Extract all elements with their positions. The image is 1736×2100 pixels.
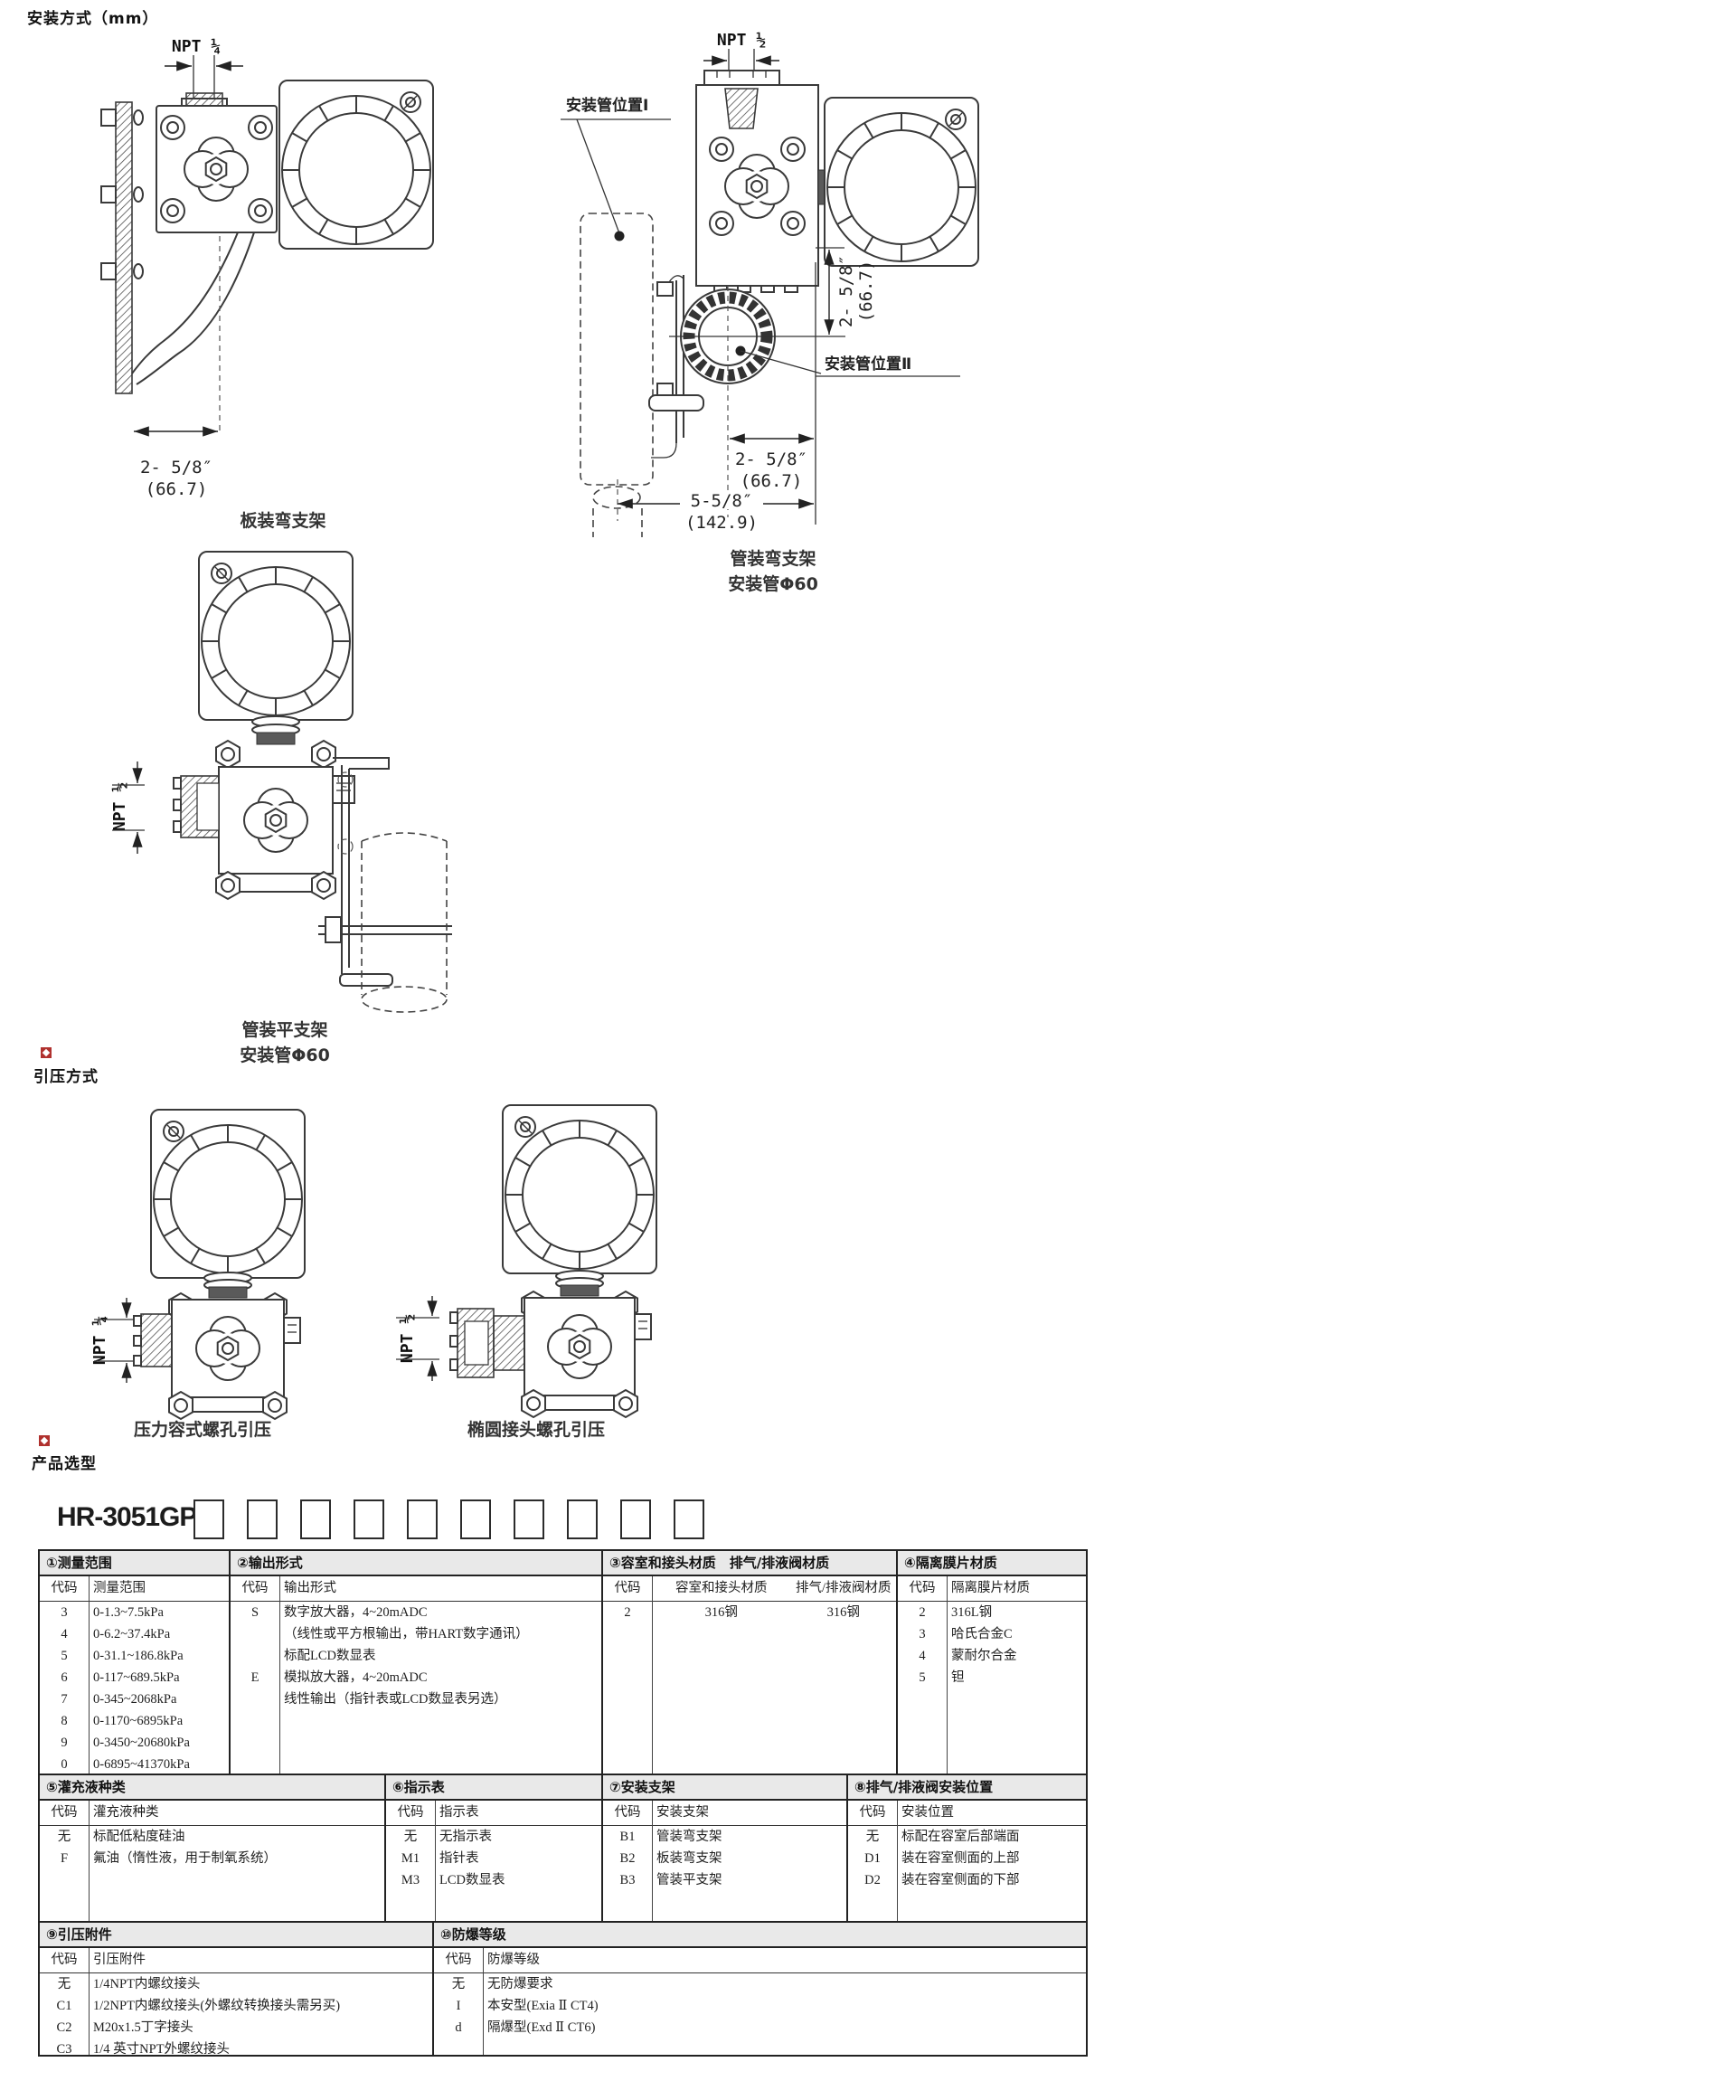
column-separator (89, 1801, 90, 1921)
column-separator (435, 1801, 436, 1921)
col-header: 防爆等级 (483, 1948, 1086, 1972)
vent-valve (635, 1314, 651, 1339)
transmitter-housing (279, 80, 433, 249)
diagram-caption: 管装弯支架 (730, 548, 816, 569)
spec-table-4: ④隔离膜片材质代码隔离膜片材质2316L钢3哈氏合金C4蒙耐尔合金5钽 (896, 1549, 1088, 1775)
table-row: B1管装弯支架 (603, 1826, 846, 1848)
table-header-row: 代码容室和接头材质排气/排液阀材质 (603, 1576, 896, 1602)
table-row: d隔爆型(Exd Ⅱ CT6) (434, 2017, 1086, 2039)
col-header: 安装位置 (897, 1801, 1086, 1825)
datasheet-page: 安装方式（mm） 引压方式 产品选型 NPT ¼ 2- 5/8″ (0, 0, 1736, 2100)
col-header: 引压附件 (89, 1948, 432, 1972)
cell: 0-345~2068kPa (89, 1689, 229, 1710)
table-header-row: 代码引压附件 (40, 1948, 432, 1973)
table-title: ④隔离膜片材质 (898, 1551, 1086, 1576)
diagram-tap-oval: NPT ½ 椭圆接头螺孔引压 (389, 1099, 696, 1452)
cell: 钽 (947, 1667, 1086, 1689)
dim-mm: (66.7) (146, 479, 208, 499)
cell: E (231, 1667, 279, 1689)
transmitter-housing (825, 98, 978, 266)
cell: 0-6895~41370kPa (89, 1754, 229, 1775)
table-row: B3管装平支架 (603, 1869, 846, 1891)
hdim1-inch: 2- 5/8″ (735, 449, 807, 469)
column-separator (897, 1801, 898, 1921)
column-separator (652, 1801, 653, 1921)
cell (231, 1689, 279, 1710)
table-row: S数字放大器，4~20mADC (231, 1602, 601, 1623)
pipe-pos2-label: 安装管位置Ⅱ (825, 355, 911, 374)
table-row: 无标配低粘度硅油 (40, 1826, 384, 1848)
column-separator (279, 1576, 280, 1774)
cell (231, 1645, 279, 1667)
code-box-3 (300, 1499, 331, 1539)
table-title: ⑥指示表 (386, 1775, 601, 1801)
col-header: 灌充液种类 (89, 1801, 384, 1825)
cell: 0-3450~20680kPa (89, 1732, 229, 1754)
table-row: 40-6.2~37.4kPa (40, 1623, 229, 1645)
table-row: 标配LCD数显表 (231, 1645, 601, 1667)
diagram-caption: 压力容式螺孔引压 (134, 1419, 271, 1440)
u-bolt (318, 917, 452, 942)
table-row: 无1/4NPT内螺纹接头 (40, 1973, 432, 1995)
cell: C2 (40, 2017, 89, 2039)
table-row: 2316L钢 (898, 1602, 1086, 1623)
vent-valve (284, 1318, 300, 1343)
cell: 氟油（惰性液，用于制氧系统） (89, 1848, 384, 1869)
cell: LCD数显表 (435, 1869, 601, 1891)
dim-inch: 2- 5/8″ (140, 458, 212, 478)
cell: M20x1.5丁字接头 (89, 2017, 432, 2039)
bent-bracket (132, 232, 238, 374)
cell: 无 (434, 1973, 483, 1995)
cell: 无 (40, 1973, 89, 1995)
diagram-caption: 椭圆接头螺孔引压 (467, 1419, 605, 1440)
npt-label: NPT ¼ (90, 1316, 109, 1365)
col-header: 代码 (386, 1801, 435, 1825)
table-row: 5钽 (898, 1667, 1086, 1689)
cell: 1/4NPT内螺纹接头 (89, 1973, 432, 1995)
table-title: ⑧排气/排液阀安装位置 (848, 1775, 1086, 1801)
spec-table-6: ⑥指示表代码指示表无无指示表M1指针表M3LCD数显表 (384, 1774, 603, 1923)
table-row: 90-3450~20680kPa (40, 1732, 229, 1754)
code-box-7 (514, 1499, 544, 1539)
cell: 数字放大器，4~20mADC (279, 1602, 601, 1623)
col-header: 代码 (40, 1576, 89, 1601)
section-title-pressure-tap: 引压方式 (33, 1064, 99, 1086)
diagram-pipe-bent-bracket: NPT ½ 安装管位置Ⅰ (533, 18, 1094, 606)
table-row: 60-117~689.5kPa (40, 1667, 229, 1689)
cell: B2 (603, 1848, 652, 1869)
code-box-5 (407, 1499, 438, 1539)
table-row: M1指针表 (386, 1848, 601, 1869)
col-header: 代码 (231, 1576, 279, 1601)
cell: 4 (40, 1623, 89, 1645)
cell: 0-31.1~186.8kPa (89, 1645, 229, 1667)
diagram-panel-bracket: NPT ¼ 2- 5/8″ (66.7) 板装弯支架 (77, 23, 457, 543)
cell: 无 (848, 1826, 897, 1848)
cell: B3 (603, 1869, 652, 1891)
code-box-9 (620, 1499, 651, 1539)
table-title: ①测量范围 (40, 1551, 229, 1576)
col-header: 隔离膜片材质 (947, 1576, 1086, 1601)
column-separator (89, 1576, 90, 1774)
cell: 隔爆型(Exd Ⅱ CT6) (483, 2017, 1086, 2039)
cell: 4 (898, 1645, 947, 1667)
table-row: 2316钢316钢 (603, 1602, 896, 1623)
cell: 2 (898, 1602, 947, 1623)
cell: 3 (40, 1602, 89, 1623)
table-row: 3哈氏合金C (898, 1623, 1086, 1645)
table-header-row: 代码隔离膜片材质 (898, 1576, 1086, 1602)
column-separator (483, 1948, 484, 2055)
cell: 2 (603, 1602, 652, 1623)
pipe-position-1 (580, 213, 653, 485)
table-header-row: 代码指示表 (386, 1801, 601, 1826)
col-header: 指示表 (435, 1801, 601, 1825)
cell: 1/2NPT内螺纹接头(外螺纹转换接头需另买) (89, 1995, 432, 2017)
cell: C3 (40, 2039, 89, 2060)
section-marker-icon (41, 1047, 52, 1058)
table-row: C2M20x1.5丁字接头 (40, 2017, 432, 2039)
transmitter-housing (503, 1105, 656, 1273)
table-row: 无无指示表 (386, 1826, 601, 1848)
diagram-pipe-flat-bracket: NPT ½ 管装平支架 安装管Φ60 (90, 543, 597, 1067)
npt-label: NPT ½ (717, 31, 766, 50)
cell: S (231, 1602, 279, 1623)
diagram-caption: 管装平支架 (241, 1019, 327, 1040)
cell: 3 (898, 1623, 947, 1645)
table-row: M3LCD数显表 (386, 1869, 601, 1891)
table-row: 50-31.1~186.8kPa (40, 1645, 229, 1667)
col-header: 代码 (434, 1948, 483, 1972)
table-header-row: 代码安装支架 (603, 1801, 846, 1826)
cell: 无防爆要求 (483, 1973, 1086, 1995)
cell: M1 (386, 1848, 435, 1869)
cell: 哈氏合金C (947, 1623, 1086, 1645)
vdim-inch: 2- 5/8″ (836, 255, 856, 327)
col-header: 代码 (848, 1801, 897, 1825)
cell: 指针表 (435, 1848, 601, 1869)
oval-adapter-port (450, 1309, 524, 1377)
spec-table-1: ①测量范围代码测量范围30-1.3~7.5kPa40-6.2~37.4kPa50… (38, 1549, 231, 1775)
col-header: 安装支架 (652, 1801, 846, 1825)
column-separator (652, 1576, 653, 1774)
cell: 0 (40, 1754, 89, 1775)
code-box-2 (247, 1499, 278, 1539)
table-row: C11/2NPT内螺纹接头(外螺纹转换接头需另买) (40, 1995, 432, 2017)
spec-table-8: ⑧排气/排液阀安装位置代码安装位置无标配在容室后部端面D1装在容室侧面的上部D2… (846, 1774, 1088, 1923)
vdim-mm: (66.7) (856, 260, 876, 323)
cell: 316钢 (791, 1602, 896, 1623)
code-box-8 (567, 1499, 598, 1539)
spec-table-10: ⑩防爆等级代码防爆等级无无防爆要求I本安型(Exia Ⅱ CT4)d隔爆型(Ex… (432, 1921, 1088, 2057)
npt-label: NPT ½ (398, 1314, 417, 1363)
diagram-caption: 安装管Φ60 (240, 1045, 330, 1065)
cell: 标配LCD数显表 (279, 1645, 601, 1667)
mounting-wall (116, 102, 132, 393)
cell: 0-117~689.5kPa (89, 1667, 229, 1689)
cell: 7 (40, 1689, 89, 1710)
cell: 本安型(Exia Ⅱ CT4) (483, 1995, 1086, 2017)
vent-valve (333, 776, 354, 803)
table-title: ⑩防爆等级 (434, 1923, 1086, 1948)
table-row: E模拟放大器，4~20mADC (231, 1667, 601, 1689)
section-title-selection: 产品选型 (32, 1451, 97, 1473)
cell: 线性输出（指针表或LCD数显表另选） (279, 1689, 601, 1710)
table-row: B2板装弯支架 (603, 1848, 846, 1869)
cell: 9 (40, 1732, 89, 1754)
table-title: ⑨引压附件 (40, 1923, 432, 1948)
col-header: 测量范围 (89, 1576, 229, 1601)
col-header: 代码 (40, 1948, 89, 1972)
col-header: 代码 (898, 1576, 947, 1601)
table-title: ⑤灌充液种类 (40, 1775, 384, 1801)
cell: 0-6.2~37.4kPa (89, 1623, 229, 1645)
cell: d (434, 2017, 483, 2039)
cell: 8 (40, 1710, 89, 1732)
cell: F (40, 1848, 89, 1869)
cell: D2 (848, 1869, 897, 1891)
table-row: 无无防爆要求 (434, 1973, 1086, 1995)
cell: 无 (386, 1826, 435, 1848)
code-box-1 (193, 1499, 224, 1539)
table-row: I本安型(Exia Ⅱ CT4) (434, 1995, 1086, 2017)
process-port (134, 1314, 172, 1367)
table-title: ②输出形式 (231, 1551, 601, 1576)
pipe-pos1-label: 安装管位置Ⅰ (566, 96, 648, 115)
column-separator (947, 1576, 948, 1774)
flat-bracket (333, 758, 392, 986)
table-row: 无标配在容室后部端面 (848, 1826, 1086, 1848)
code-box-4 (354, 1499, 384, 1539)
table-header-row: 代码防爆等级 (434, 1948, 1086, 1973)
selection-tables: ①测量范围代码测量范围30-1.3~7.5kPa40-6.2~37.4kPa50… (38, 1549, 1088, 2058)
table-header-row: 代码输出形式 (231, 1576, 601, 1602)
hdim2-mm: (142.9) (685, 513, 758, 533)
table-row: C31/4 英寸NPT外螺纹接头 (40, 2039, 432, 2060)
col-header: 代码 (40, 1801, 89, 1825)
table-row: 00-6895~41370kPa (40, 1754, 229, 1775)
cell: I (434, 1995, 483, 2017)
column-separator (89, 1948, 90, 2055)
process-port (174, 776, 219, 837)
cell: 316钢 (652, 1602, 791, 1623)
table-title: ③容室和接头材质 排气/排液阀材质 (603, 1551, 896, 1576)
code-box-10 (674, 1499, 704, 1539)
table-row: （线性或平方根输出，带HART数字通讯） (231, 1623, 601, 1645)
diagram-caption: 板装弯支架 (240, 510, 325, 531)
table-header-row: 代码灌充液种类 (40, 1801, 384, 1826)
cell: 无 (40, 1826, 89, 1848)
diagram-tap-chamber: NPT ¼ 压力容式螺孔引压 (90, 1099, 362, 1452)
section-marker-icon (39, 1435, 50, 1446)
col-header: 代码 (603, 1801, 652, 1825)
table-row: 4蒙耐尔合金 (898, 1645, 1086, 1667)
cell: 管装平支架 (652, 1869, 846, 1891)
table-row: D1装在容室侧面的上部 (848, 1848, 1086, 1869)
hdim1-mm: (66.7) (741, 471, 803, 491)
col-header: 容室和接头材质 (652, 1576, 791, 1601)
cell: （线性或平方根输出，带HART数字通讯） (279, 1623, 601, 1645)
table-row: 70-345~2068kPa (40, 1689, 229, 1710)
cell: 蒙耐尔合金 (947, 1645, 1086, 1667)
cell: 装在容室侧面的上部 (897, 1848, 1086, 1869)
spec-table-7: ⑦安装支架代码安装支架B1管装弯支架B2板装弯支架B3管装平支架 (601, 1774, 848, 1923)
transmitter-housing (199, 552, 353, 720)
model-prefix: HR-3051GP- (57, 1502, 204, 1533)
cell: M3 (386, 1869, 435, 1891)
transmitter-housing (151, 1110, 305, 1278)
table-row: 30-1.3~7.5kPa (40, 1602, 229, 1623)
table-row: 80-1170~6895kPa (40, 1710, 229, 1732)
spec-table-2: ②输出形式代码输出形式S数字放大器，4~20mADC（线性或平方根输出，带HAR… (229, 1549, 603, 1775)
spec-table-3: ③容室和接头材质 排气/排液阀材质代码容室和接头材质排气/排液阀材质2316钢3… (601, 1549, 898, 1775)
cell (231, 1623, 279, 1645)
cell: 6 (40, 1667, 89, 1689)
cell: 模拟放大器，4~20mADC (279, 1667, 601, 1689)
cell: C1 (40, 1995, 89, 2017)
table-header-row: 代码测量范围 (40, 1576, 229, 1602)
cell: 标配低粘度硅油 (89, 1826, 384, 1848)
cell: D1 (848, 1848, 897, 1869)
table-header-row: 代码安装位置 (848, 1801, 1086, 1826)
cell: 5 (898, 1667, 947, 1689)
cell: 板装弯支架 (652, 1848, 846, 1869)
cell: 0-1.3~7.5kPa (89, 1602, 229, 1623)
code-box-6 (460, 1499, 491, 1539)
spec-table-5: ⑤灌充液种类代码灌充液种类无标配低粘度硅油F氟油（惰性液，用于制氧系统） (38, 1774, 386, 1923)
cell: 5 (40, 1645, 89, 1667)
cell: 管装弯支架 (652, 1826, 846, 1848)
diagram-caption: 安装管Φ60 (728, 573, 818, 594)
col-header: 代码 (603, 1576, 652, 1601)
table-row: F氟油（惰性液，用于制氧系统） (40, 1848, 384, 1869)
hdim2-inch: 5-5/8″ (691, 491, 753, 511)
cell: 1/4 英寸NPT外螺纹接头 (89, 2039, 432, 2060)
col-header: 排气/排液阀材质 (791, 1576, 896, 1601)
spec-table-9: ⑨引压附件代码引压附件无1/4NPT内螺纹接头C11/2NPT内螺纹接头(外螺纹… (38, 1921, 434, 2057)
npt-label: NPT ¼ (172, 37, 221, 56)
cell: 标配在容室后部端面 (897, 1826, 1086, 1848)
cell: 316L钢 (947, 1602, 1086, 1623)
col-header: 输出形式 (279, 1576, 601, 1601)
table-row: D2装在容室侧面的下部 (848, 1869, 1086, 1891)
cell: 无指示表 (435, 1826, 601, 1848)
cell: 装在容室侧面的下部 (897, 1869, 1086, 1891)
cell: B1 (603, 1826, 652, 1848)
npt-label: NPT ½ (110, 782, 129, 831)
cell: 0-1170~6895kPa (89, 1710, 229, 1732)
table-title: ⑦安装支架 (603, 1775, 846, 1801)
table-row: 线性输出（指针表或LCD数显表另选） (231, 1689, 601, 1710)
